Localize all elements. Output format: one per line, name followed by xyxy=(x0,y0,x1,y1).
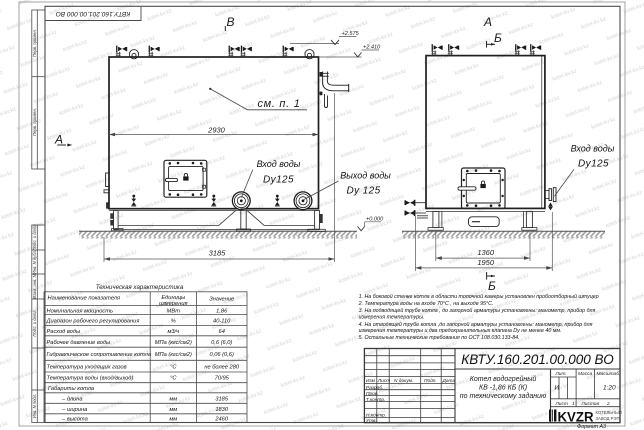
svg-text:А: А xyxy=(483,15,492,29)
svg-text:Перв. примен.: Перв. примен. xyxy=(32,108,37,136)
svg-text:Н.контр.: Н.контр. xyxy=(366,413,386,419)
svg-text:1,86: 1,86 xyxy=(216,308,228,314)
svg-text:Лист: Лист xyxy=(377,378,390,384)
svg-text:+2.410: +2.410 xyxy=(363,45,381,51)
svg-text:м3/ч: м3/ч xyxy=(168,329,180,335)
svg-text:Вход воды: Вход воды xyxy=(257,159,301,169)
svg-text:И: И xyxy=(555,385,560,392)
svg-text:Габариты котла: Габариты котла xyxy=(48,386,94,392)
svg-text:мм: мм xyxy=(169,396,177,402)
svg-text:Значение: Значение xyxy=(209,297,234,303)
svg-text:1: 1 xyxy=(572,401,575,407)
svg-text:Лист: Лист xyxy=(555,401,568,407)
svg-text:Утв.: Утв. xyxy=(366,418,377,424)
svg-text:Котел водогрейный: Котел водогрейный xyxy=(470,375,537,383)
svg-text:МПа (кгс/см2): МПа (кгс/см2) xyxy=(155,352,192,358)
svg-text:не более 280: не более 280 xyxy=(204,365,240,371)
svg-text:В: В xyxy=(227,15,235,29)
svg-text:Взам. инв. N: Взам. инв. N xyxy=(32,273,37,298)
svg-text:Масса: Масса xyxy=(578,371,593,377)
svg-text:1360: 1360 xyxy=(477,248,495,257)
svg-text:+0.000: +0.000 xyxy=(366,216,384,222)
svg-text:°С: °С xyxy=(170,376,177,382)
svg-text:КВТУ.160.201.00.000 ВО: КВТУ.160.201.00.000 ВО xyxy=(461,352,614,367)
svg-text:мм: мм xyxy=(169,417,177,423)
svg-text:Техническая характеристика: Техническая характеристика xyxy=(96,284,184,291)
svg-text:Лит.: Лит. xyxy=(555,371,567,377)
svg-text:Перв. примен.: Перв. примен. xyxy=(32,29,37,57)
svg-text:3. На подводящей трубе котла: 3. На подводящей трубе котла , до запорн… xyxy=(359,307,596,314)
svg-text:КВТУ.160.201.00.000 ВО: КВТУ.160.201.00.000 ВО xyxy=(56,10,130,17)
svg-text:Температура воды (вход/выход): Температура воды (вход/выход) xyxy=(47,376,134,382)
svg-text:МВт: МВт xyxy=(167,308,181,314)
svg-text:Б: Б xyxy=(494,31,502,45)
svg-text:°С: °С xyxy=(170,365,177,371)
svg-text:Dy125: Dy125 xyxy=(263,174,294,185)
svg-text:Наименование показателя: Наименование показателя xyxy=(48,296,121,302)
svg-text:1830: 1830 xyxy=(215,407,228,413)
svg-text:Гидравлическое сопротивление к: Гидравлическое сопротивление котла xyxy=(47,352,152,358)
svg-text:64: 64 xyxy=(219,329,225,335)
svg-text:МПа (кгс/см2): МПа (кгс/см2) xyxy=(155,340,192,346)
svg-text:Изм: Изм xyxy=(366,378,376,384)
svg-text:Разраб.: Разраб. xyxy=(366,385,383,391)
svg-text:Подп. и дата: Подп. и дата xyxy=(32,224,37,251)
svg-text:КОТЕЛЬНЫЙ: КОТЕЛЬНЫЙ xyxy=(596,410,622,415)
svg-text:ЗАВОД РЭП: ЗАВОД РЭП xyxy=(596,416,620,421)
svg-text:+2.575: +2.575 xyxy=(342,31,360,37)
svg-text:– ширина: – ширина xyxy=(61,407,87,413)
svg-text:70/95: 70/95 xyxy=(215,376,230,382)
svg-text:измерения температуры и два пр: измерения температуры и два предохраните… xyxy=(359,328,562,334)
svg-text:Температура уходящих газов: Температура уходящих газов xyxy=(47,365,127,371)
svg-text:Дата: Дата xyxy=(442,378,456,384)
svg-text:Расход воды: Расход воды xyxy=(47,329,81,335)
svg-text:4. На отводящей трубе котла ,: 4. На отводящей трубе котла ,до запорной… xyxy=(359,321,593,328)
svg-text:Подп.: Подп. xyxy=(424,378,437,384)
svg-text:А: А xyxy=(54,133,63,147)
svg-text:Б: Б xyxy=(488,279,496,293)
svg-text:1:20: 1:20 xyxy=(603,385,616,392)
svg-text:Dy125: Dy125 xyxy=(578,159,609,170)
svg-text:%: % xyxy=(171,318,176,324)
svg-text:Номинальная мощность: Номинальная мощность xyxy=(47,308,113,314)
svg-text:Выход воды: Выход воды xyxy=(340,171,391,181)
svg-text:1950: 1950 xyxy=(477,258,495,267)
svg-text:Рабочее давление воды: Рабочее давление воды xyxy=(47,340,112,346)
svg-text:Формат А3: Формат А3 xyxy=(577,424,606,430)
svg-text:Пров.: Пров. xyxy=(366,391,379,397)
svg-text:2. Температура воды на входе: 2. Температура воды на входе 70°С , на в… xyxy=(358,301,494,307)
svg-text:см. п. 1: см. п. 1 xyxy=(257,98,300,110)
svg-text:измерения температуры.: измерения температуры. xyxy=(359,315,425,321)
svg-text:Dy 125: Dy 125 xyxy=(346,185,380,196)
svg-text:3185: 3185 xyxy=(215,396,228,402)
svg-text:0,6 (6,0): 0,6 (6,0) xyxy=(211,340,232,346)
svg-text:2930: 2930 xyxy=(207,126,226,135)
svg-text:измерения: измерения xyxy=(159,301,187,307)
svg-text:2: 2 xyxy=(606,401,610,407)
svg-text:2460: 2460 xyxy=(214,417,228,423)
svg-text:Диапазон рабочего регулировани: Диапазон рабочего регулирования xyxy=(46,318,140,324)
svg-text:Подп. и дата: Подп. и дата xyxy=(32,310,37,337)
svg-text:Инв. N дубл.: Инв. N дубл. xyxy=(32,250,37,274)
svg-text:Листов: Листов xyxy=(581,401,600,407)
svg-text:KVZR: KVZR xyxy=(558,410,594,425)
svg-text:5. Остальные технические треб: 5. Остальные технические требования по О… xyxy=(359,335,520,341)
svg-text:Т.контр.: Т.контр. xyxy=(366,397,385,403)
svg-text:мм: мм xyxy=(169,407,177,413)
svg-text:1. На боковой стенке котла в: 1. На боковой стенке котла в области топ… xyxy=(359,293,599,300)
svg-text:Вход воды: Вход воды xyxy=(571,144,615,154)
svg-text:по техническому заданию: по техническому заданию xyxy=(460,392,547,400)
svg-text:N докум.: N докум. xyxy=(394,378,413,384)
svg-text:40-110: 40-110 xyxy=(213,318,231,324)
svg-text:Инв. N подл.: Инв. N подл. xyxy=(32,394,37,418)
svg-text:0,06 (0,6): 0,06 (0,6) xyxy=(210,352,234,358)
svg-text:Масштаб: Масштаб xyxy=(597,371,620,377)
svg-text:КВ -1,86 КБ (К): КВ -1,86 КБ (К) xyxy=(479,385,527,392)
svg-text:3185: 3185 xyxy=(209,249,227,258)
svg-text:– высота: – высота xyxy=(61,417,88,423)
svg-text:– длина: – длина xyxy=(61,396,83,402)
